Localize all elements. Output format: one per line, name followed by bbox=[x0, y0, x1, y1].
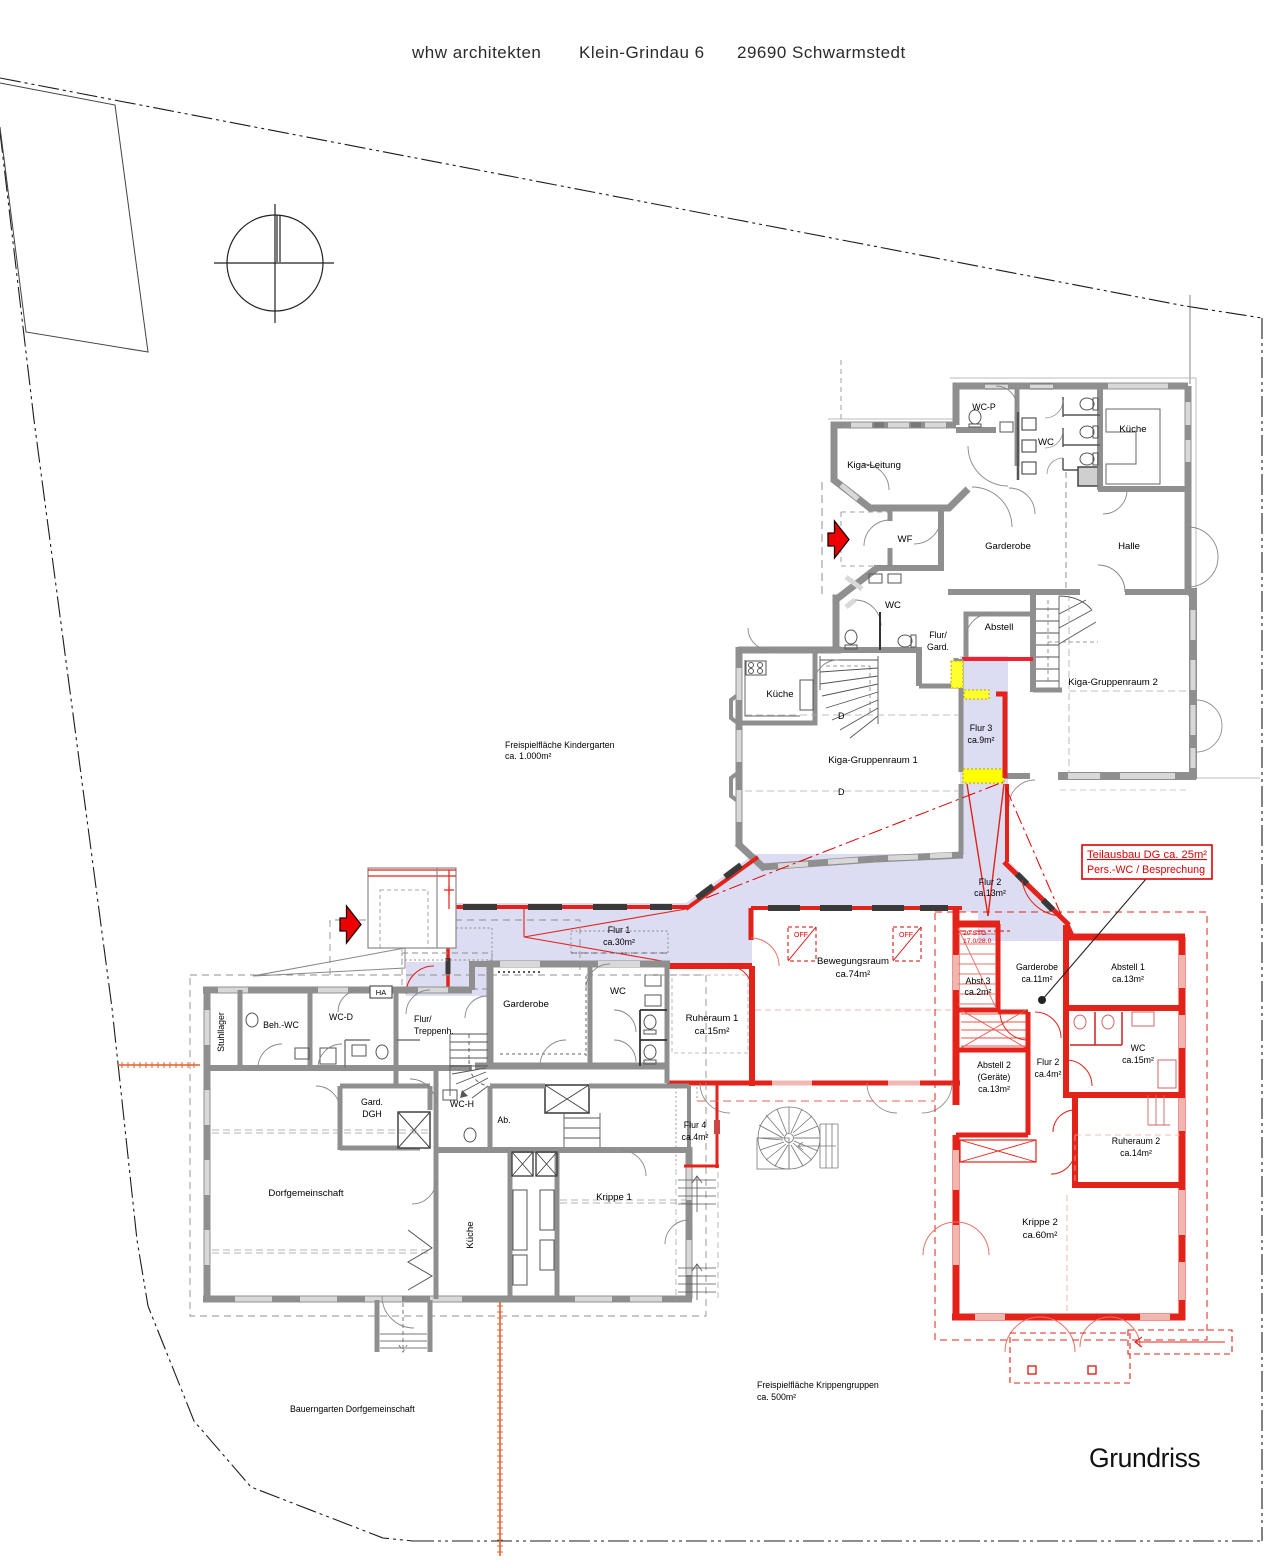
svg-text:Garderobe: Garderobe bbox=[503, 999, 549, 1010]
svg-text:ca.74m²: ca.74m² bbox=[836, 969, 871, 980]
svg-text:ca. 500m²: ca. 500m² bbox=[757, 1392, 796, 1402]
svg-text:Abstell: Abstell bbox=[985, 622, 1014, 633]
svg-text:29690 Schwarmstedt: 29690 Schwarmstedt bbox=[737, 43, 906, 62]
svg-text:WC: WC bbox=[610, 986, 626, 997]
svg-text:WC-D: WC-D bbox=[329, 1012, 353, 1022]
svg-text:Klein-Grindau 6: Klein-Grindau 6 bbox=[579, 43, 705, 62]
svg-text:Gard.: Gard. bbox=[361, 1097, 383, 1107]
svg-text:WC: WC bbox=[1038, 437, 1054, 448]
svg-text:Ab.: Ab. bbox=[497, 1115, 510, 1125]
svg-text:Flur/: Flur/ bbox=[929, 630, 947, 640]
svg-text:Bauerngarten Dorfgemeinschaft: Bauerngarten Dorfgemeinschaft bbox=[290, 1404, 415, 1414]
svg-text:Ruheraum 1: Ruheraum 1 bbox=[686, 1013, 739, 1024]
svg-text:ca.4m²: ca.4m² bbox=[682, 1132, 709, 1142]
svg-text:OFF: OFF bbox=[899, 932, 913, 939]
svg-text:HA: HA bbox=[376, 988, 386, 997]
svg-text:Teilausbau DG ca. 25m²: Teilausbau DG ca. 25m² bbox=[1087, 849, 1207, 861]
svg-text:ca.13m²: ca.13m² bbox=[1112, 974, 1144, 984]
svg-text:Kiga-Gruppenraum 2: Kiga-Gruppenraum 2 bbox=[1068, 677, 1158, 688]
svg-text:ca.30m²: ca.30m² bbox=[603, 937, 635, 947]
svg-text:Garderobe: Garderobe bbox=[985, 541, 1031, 552]
svg-text:ca.13m²: ca.13m² bbox=[978, 1084, 1010, 1094]
svg-text:Krippe 2: Krippe 2 bbox=[1022, 1217, 1058, 1228]
svg-text:Abstell 2: Abstell 2 bbox=[977, 1060, 1011, 1070]
svg-text:Krippe 1: Krippe 1 bbox=[596, 1192, 632, 1203]
svg-text:Flur/: Flur/ bbox=[414, 1014, 432, 1024]
svg-text:Freispielfläche Kindergarten: Freispielfläche Kindergarten bbox=[505, 740, 615, 750]
svg-text:ca.11m²: ca.11m² bbox=[1021, 974, 1052, 984]
svg-text:Gard.: Gard. bbox=[927, 642, 949, 652]
svg-text:whw architekten: whw architekten bbox=[411, 43, 541, 62]
svg-text:WC: WC bbox=[1131, 1043, 1146, 1053]
svg-text:17.0/28.0: 17.0/28.0 bbox=[963, 938, 992, 945]
svg-text:Pers.-WC / Besprechung: Pers.-WC / Besprechung bbox=[1087, 864, 1205, 876]
svg-text:ca.14m²: ca.14m² bbox=[1120, 1148, 1152, 1158]
svg-text:ca.2m²: ca.2m² bbox=[965, 987, 992, 997]
svg-text:OFF: OFF bbox=[794, 932, 808, 939]
svg-text:Küche: Küche bbox=[766, 689, 793, 700]
svg-text:Flur 2: Flur 2 bbox=[1037, 1057, 1060, 1067]
svg-text:Abstell 1: Abstell 1 bbox=[1111, 962, 1145, 972]
svg-text:ca.15m²: ca.15m² bbox=[695, 1026, 730, 1037]
svg-text:Bewegungsraum: Bewegungsraum bbox=[817, 956, 889, 967]
svg-text:WC-H: WC-H bbox=[450, 1099, 474, 1109]
svg-text:D: D bbox=[838, 787, 845, 797]
svg-text:(Geräte): (Geräte) bbox=[978, 1072, 1011, 1082]
svg-text:ca. 1.000m²: ca. 1.000m² bbox=[505, 751, 552, 761]
svg-text:Treppenh.: Treppenh. bbox=[414, 1026, 454, 1036]
svg-text:WF: WF bbox=[898, 534, 913, 545]
svg-text:Abst.3: Abst.3 bbox=[966, 976, 991, 986]
svg-text:Flur 3: Flur 3 bbox=[970, 723, 993, 733]
svg-text:WC: WC bbox=[885, 600, 901, 611]
svg-text:ca.13m²: ca.13m² bbox=[974, 888, 1006, 898]
svg-text:ca.4m²: ca.4m² bbox=[1035, 1069, 1062, 1079]
svg-text:D: D bbox=[838, 711, 845, 721]
svg-text:Flur 4: Flur 4 bbox=[684, 1120, 707, 1130]
svg-text:Kiga-Leitung: Kiga-Leitung bbox=[847, 460, 901, 471]
svg-text:DGH: DGH bbox=[362, 1109, 382, 1119]
svg-text:ca.60m²: ca.60m² bbox=[1023, 1230, 1058, 1241]
svg-text:Kiga-Gruppenraum 1: Kiga-Gruppenraum 1 bbox=[828, 755, 918, 766]
svg-text:20 STG: 20 STG bbox=[963, 930, 986, 937]
svg-text:ca.15m²: ca.15m² bbox=[1122, 1055, 1154, 1065]
svg-text:Halle: Halle bbox=[1118, 541, 1140, 552]
svg-text:Beh.-WC: Beh.-WC bbox=[263, 1020, 299, 1030]
svg-text:WC-P: WC-P bbox=[972, 402, 996, 412]
svg-text:Dorfgemeinschaft: Dorfgemeinschaft bbox=[268, 1188, 344, 1199]
svg-text:Grundriss: Grundriss bbox=[1089, 1443, 1200, 1473]
svg-text:Küche: Küche bbox=[465, 1221, 476, 1248]
svg-text:Küche: Küche bbox=[1119, 424, 1146, 435]
svg-text:Garderobe: Garderobe bbox=[1016, 962, 1058, 972]
svg-text:Stuhllager: Stuhllager bbox=[216, 1012, 226, 1052]
svg-text:Flur 1: Flur 1 bbox=[608, 925, 631, 935]
svg-text:Freispielfläche Krippengruppen: Freispielfläche Krippengruppen bbox=[757, 1380, 879, 1390]
svg-text:Ruheraum 2: Ruheraum 2 bbox=[1112, 1136, 1161, 1146]
svg-text:Flur 2: Flur 2 bbox=[979, 877, 1002, 887]
svg-text:ca.9m²: ca.9m² bbox=[968, 735, 995, 745]
